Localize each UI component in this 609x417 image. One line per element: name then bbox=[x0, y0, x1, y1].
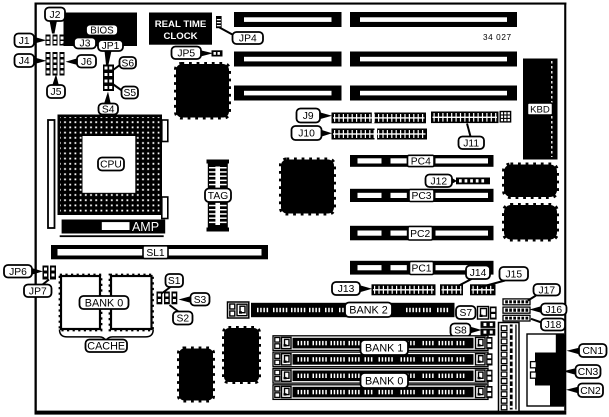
svg-text:S4: S4 bbox=[102, 105, 115, 116]
svg-text:BANK 0: BANK 0 bbox=[365, 375, 403, 387]
svg-text:J9: J9 bbox=[303, 111, 314, 122]
svg-text:J6: J6 bbox=[81, 57, 92, 68]
svg-text:JP1: JP1 bbox=[102, 41, 120, 52]
svg-text:AMP: AMP bbox=[132, 220, 159, 234]
svg-text:CN3: CN3 bbox=[578, 367, 599, 378]
svg-text:J11: J11 bbox=[463, 139, 479, 150]
svg-text:TAG: TAG bbox=[208, 191, 228, 202]
svg-text:S2: S2 bbox=[176, 314, 189, 325]
svg-text:S8: S8 bbox=[454, 326, 467, 337]
svg-text:J12: J12 bbox=[430, 177, 447, 188]
svg-text:S6: S6 bbox=[121, 59, 134, 70]
svg-text:J3: J3 bbox=[80, 39, 91, 50]
svg-text:REAL TIME: REAL TIME bbox=[155, 19, 207, 30]
svg-text:J4: J4 bbox=[19, 56, 30, 67]
svg-text:JP6: JP6 bbox=[9, 267, 27, 278]
svg-text:JP4: JP4 bbox=[239, 34, 257, 45]
svg-text:J16: J16 bbox=[545, 305, 562, 316]
svg-text:J14: J14 bbox=[470, 268, 487, 279]
svg-text:S7: S7 bbox=[459, 308, 472, 319]
svg-text:J13: J13 bbox=[338, 284, 355, 295]
svg-text:CN2: CN2 bbox=[580, 386, 601, 397]
svg-text:J17: J17 bbox=[538, 286, 555, 297]
svg-text:BIOS: BIOS bbox=[90, 26, 114, 37]
svg-text:J18: J18 bbox=[545, 320, 562, 331]
svg-text:PC3: PC3 bbox=[411, 191, 431, 202]
svg-text:KBD: KBD bbox=[530, 105, 550, 116]
svg-text:CLOCK: CLOCK bbox=[163, 31, 197, 42]
svg-text:BANK 2: BANK 2 bbox=[349, 305, 387, 317]
svg-text:S3: S3 bbox=[194, 295, 207, 306]
svg-text:PC1: PC1 bbox=[411, 264, 431, 275]
svg-text:JP5: JP5 bbox=[177, 49, 195, 60]
svg-text:J10: J10 bbox=[298, 129, 315, 140]
svg-text:PC2: PC2 bbox=[410, 229, 430, 240]
svg-text:S5: S5 bbox=[123, 88, 136, 99]
svg-text:JP7: JP7 bbox=[29, 287, 47, 298]
svg-text:BANK 0: BANK 0 bbox=[85, 297, 123, 309]
svg-text:S1: S1 bbox=[168, 276, 181, 287]
svg-text:J1: J1 bbox=[19, 36, 30, 47]
svg-text:J2: J2 bbox=[50, 10, 61, 21]
svg-text:J5: J5 bbox=[51, 87, 62, 98]
svg-text:PC4: PC4 bbox=[411, 157, 431, 168]
svg-text:CPU: CPU bbox=[100, 160, 122, 171]
svg-text:BANK 1: BANK 1 bbox=[365, 342, 403, 354]
svg-text:CACHE: CACHE bbox=[87, 341, 125, 353]
svg-text:SL1: SL1 bbox=[146, 248, 165, 259]
svg-text:J15: J15 bbox=[505, 270, 522, 281]
svg-text:CN1: CN1 bbox=[582, 346, 603, 357]
svg-text:34 027: 34 027 bbox=[483, 33, 512, 42]
